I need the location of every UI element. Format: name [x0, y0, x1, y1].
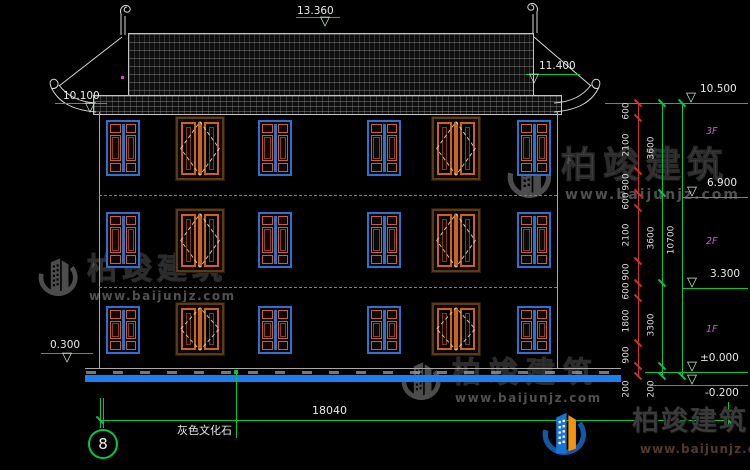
watermark-logo-icon [30, 250, 82, 308]
floor-label-1f: 1F [706, 325, 718, 335]
window-casement [367, 212, 401, 268]
dim-top-right: 10.500 [700, 84, 737, 95]
window-casement [106, 212, 140, 268]
elevation-triangle-icon: ▽ [60, 352, 74, 363]
dim-floor3: 6.900 [707, 178, 737, 189]
elevation-triangle-icon: ▽ [318, 16, 332, 27]
plinth-band [86, 371, 620, 374]
elevation-triangle-icon: ▽ [685, 374, 699, 385]
chain-dim-label: 2100 [623, 223, 632, 246]
chain-dim-label: 600 [623, 282, 632, 299]
elevation-triangle-icon: ▽ [685, 186, 699, 197]
brand-logo-site: www.baijunjz.com [640, 443, 750, 455]
dim-eave-right: 11.400 [539, 61, 576, 72]
chain-dim-label: 200 [623, 380, 632, 397]
watermark-brand: 柏竣建筑 [561, 148, 729, 184]
axis-extension-line [103, 398, 104, 428]
dim-foundation: -0.200 [705, 388, 739, 399]
dimension-chain-line [662, 103, 663, 376]
floor-line-2f [99, 287, 557, 288]
dim-total-width: 18040 [312, 405, 347, 416]
floor-label-2f: 2F [706, 237, 718, 247]
axis-number: 8 [98, 435, 108, 453]
watermark-site: www.baijunjz.com [565, 188, 740, 202]
leader-dot [234, 370, 238, 374]
window-lattice [176, 117, 224, 180]
brand-logo-text: 柏竣建筑 [632, 408, 748, 435]
window-casement [367, 120, 401, 176]
chain-dim-label: 200 [648, 380, 657, 397]
dimension-chain-line [682, 103, 683, 376]
chain-dim-label: 600 [623, 192, 632, 209]
chain-dim-label: 600 [623, 102, 632, 119]
window-casement [367, 306, 401, 354]
dimension-chain-line [638, 103, 639, 376]
chain-dim-label: 900 [623, 346, 632, 363]
wall-right-edge [557, 112, 558, 368]
brand-logo-icon [533, 406, 591, 466]
window-lattice [432, 209, 480, 272]
ground-line [85, 375, 621, 382]
chain-dim-label: 10700 [668, 225, 677, 254]
window-lattice [432, 117, 480, 180]
elevation-triangle-icon: ▽ [83, 102, 97, 113]
window-casement [517, 212, 551, 268]
dim-floor2: 3.300 [710, 269, 740, 280]
chain-dim-label: 3600 [648, 137, 657, 160]
window-lattice [432, 303, 480, 355]
window-casement [258, 120, 292, 176]
material-leader-line [236, 372, 237, 438]
axis-extension-line [100, 398, 101, 428]
watermark-site: www.baijunjz.com [455, 392, 602, 404]
watermark-site: www.baijunjz.com [89, 290, 236, 302]
elevation-triangle-icon: ▽ [685, 361, 699, 372]
chain-dim-label: 2100 [623, 133, 632, 156]
axis-bubble-8: 8 [88, 429, 118, 459]
elevation-triangle-icon: ▽ [685, 277, 699, 288]
dim-ground: ±0.000 [700, 353, 739, 364]
chain-dim-label: 3600 [648, 227, 657, 250]
elevation-drawing: 柏竣建筑 www.baijunjz.com 柏竣建筑 www.baijunjz.… [0, 0, 750, 470]
window-casement [106, 306, 140, 354]
floor-line-3f [99, 195, 557, 196]
finial-marker-dot [121, 76, 124, 79]
window-casement [258, 306, 292, 354]
window-lattice [176, 303, 224, 355]
wall-base-line [85, 368, 621, 369]
window-casement [258, 212, 292, 268]
window-casement [517, 120, 551, 176]
chain-dim-label: 900 [623, 173, 632, 190]
chain-dim-label: 900 [623, 263, 632, 280]
level-foundation-line [650, 385, 748, 386]
window-lattice [176, 209, 224, 272]
wall-left-edge [99, 112, 100, 368]
dim-plinth: 0.300 [50, 340, 80, 351]
floor-label-3f: 3F [706, 127, 718, 137]
roof-ridge-band [128, 33, 534, 97]
window-casement [517, 306, 551, 354]
window-casement [106, 120, 140, 176]
elevation-triangle-icon: ▽ [527, 73, 541, 84]
watermark-logo-icon [393, 356, 445, 410]
material-note: 灰色文化石 [150, 425, 232, 436]
dim-eave-left-line [55, 103, 107, 104]
chain-dim-label: 3300 [648, 313, 657, 336]
chain-dim-label: 1800 [623, 309, 632, 332]
roof-eave-band [93, 95, 562, 115]
elevation-triangle-icon: ▽ [684, 92, 698, 103]
